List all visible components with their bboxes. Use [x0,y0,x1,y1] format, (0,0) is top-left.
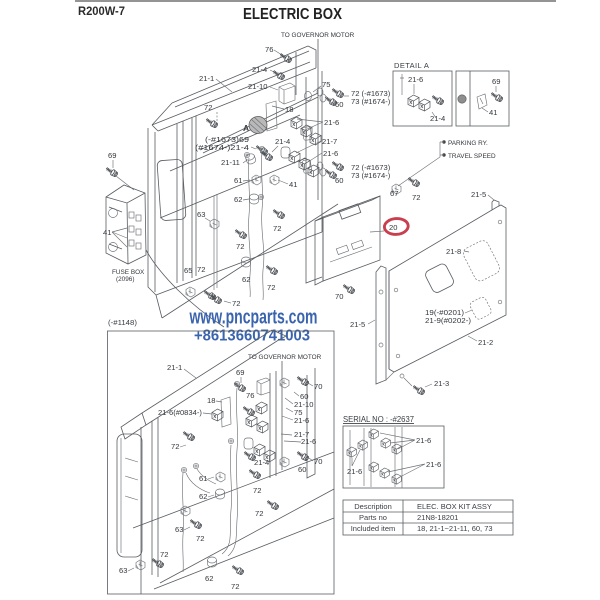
svg-text:76: 76 [246,391,254,400]
svg-text:21-9(#0202-): 21-9(#0202-) [425,316,471,325]
svg-text:62: 62 [205,574,213,583]
svg-text:72: 72 [273,224,281,233]
svg-text:A: A [243,123,249,133]
svg-text:72: 72 [196,534,204,543]
svg-text:TO GOVERNOR MOTOR: TO GOVERNOR MOTOR [248,354,322,361]
svg-text:Included item: Included item [351,524,396,533]
svg-text:76: 76 [265,45,273,54]
svg-text:www.pncparts.com: www.pncparts.com [189,305,318,328]
svg-text:69: 69 [108,151,116,160]
svg-text:63: 63 [119,566,127,575]
svg-text:21-5: 21-5 [350,320,365,329]
svg-text:Parts no: Parts no [359,513,387,522]
svg-text:FUSE BOX: FUSE BOX [112,269,145,276]
svg-text:69: 69 [236,368,244,377]
svg-text:21-1: 21-1 [167,363,182,372]
svg-text:63: 63 [197,210,205,219]
svg-text:21-4: 21-4 [252,65,267,74]
svg-text:72: 72 [236,242,244,251]
svg-text:21-7: 21-7 [322,137,337,146]
svg-text:70: 70 [335,292,343,301]
svg-text:73 (#1674-): 73 (#1674-) [351,171,391,180]
svg-text:75: 75 [322,80,330,89]
svg-text:21-6: 21-6 [301,437,316,446]
svg-text:SERIAL NO : -#2637: SERIAL NO : -#2637 [343,414,414,424]
svg-text:60: 60 [298,465,306,474]
svg-text:DETAIL A: DETAIL A [394,61,429,70]
svg-text:21-3: 21-3 [434,379,449,388]
svg-text:72: 72 [197,265,205,274]
svg-text:21-10: 21-10 [248,82,267,91]
svg-text:62: 62 [199,492,207,501]
svg-text:72: 72 [267,283,275,292]
svg-text:18, 21-1~21-11, 60, 73: 18, 21-1~21-11, 60, 73 [417,524,493,533]
svg-text:+8613660741003: +8613660741003 [194,327,310,344]
svg-text:21-8: 21-8 [446,247,461,256]
svg-text:R200W-7: R200W-7 [78,6,125,18]
svg-text:ELEC. BOX KIT ASSY: ELEC. BOX KIT ASSY [417,502,492,511]
svg-text:21-2: 21-2 [478,338,493,347]
svg-text:70: 70 [314,457,322,466]
svg-text:72: 72 [255,509,263,518]
svg-text:18: 18 [285,105,293,114]
svg-text:21-1: 21-1 [199,74,214,83]
svg-text:72: 72 [204,103,212,112]
svg-text:21N8-18201: 21N8-18201 [417,513,458,522]
svg-text:72: 72 [171,442,179,451]
svg-text:21-4: 21-4 [430,114,445,123]
svg-text:21-6: 21-6 [323,149,338,158]
svg-text:20: 20 [389,223,397,232]
svg-text:72: 72 [412,193,420,202]
svg-text:ELECTRIC BOX: ELECTRIC BOX [243,6,343,23]
svg-text:72: 72 [160,550,168,559]
svg-text:72: 72 [231,582,239,591]
svg-text:62: 62 [234,195,242,204]
svg-text:21-11: 21-11 [221,158,240,167]
svg-text:21-4: 21-4 [275,137,290,146]
svg-text:21-6: 21-6 [294,416,309,425]
svg-text:69: 69 [492,77,500,86]
svg-text:60: 60 [335,100,343,109]
svg-text:21-6: 21-6 [347,467,362,476]
svg-text:21-6(#0834-): 21-6(#0834-) [158,408,202,417]
svg-text:65: 65 [184,266,192,275]
svg-text:21-5: 21-5 [471,190,486,199]
svg-text:62: 62 [242,275,250,284]
svg-text:21-6: 21-6 [324,118,339,127]
svg-text:21-6: 21-6 [426,460,441,469]
svg-text:TRAVEL SPEED: TRAVEL SPEED [448,153,496,160]
svg-text:73 (#1674-): 73 (#1674-) [351,97,391,106]
svg-text:70: 70 [314,382,322,391]
svg-text:60: 60 [335,176,343,185]
svg-text:(2096): (2096) [116,276,134,283]
svg-text:41: 41 [103,228,111,237]
svg-text:(-#1148): (-#1148) [108,318,138,327]
svg-text:18: 18 [207,396,215,405]
svg-text:(#1674-)21-4: (#1674-)21-4 [195,143,249,152]
svg-text:41: 41 [289,180,297,189]
svg-text:21-6: 21-6 [408,75,423,84]
svg-text:41: 41 [489,108,497,117]
svg-text:PARKING RY.: PARKING RY. [448,140,488,147]
svg-text:63: 63 [175,525,183,534]
svg-text:Description: Description [354,502,392,511]
svg-text:67: 67 [390,189,398,198]
svg-text:21-6: 21-6 [416,436,431,445]
svg-text:72: 72 [253,486,261,495]
svg-text:21-4: 21-4 [254,458,269,467]
svg-text:TO GOVERNOR MOTOR: TO GOVERNOR MOTOR [281,32,355,39]
svg-text:61: 61 [234,176,242,185]
